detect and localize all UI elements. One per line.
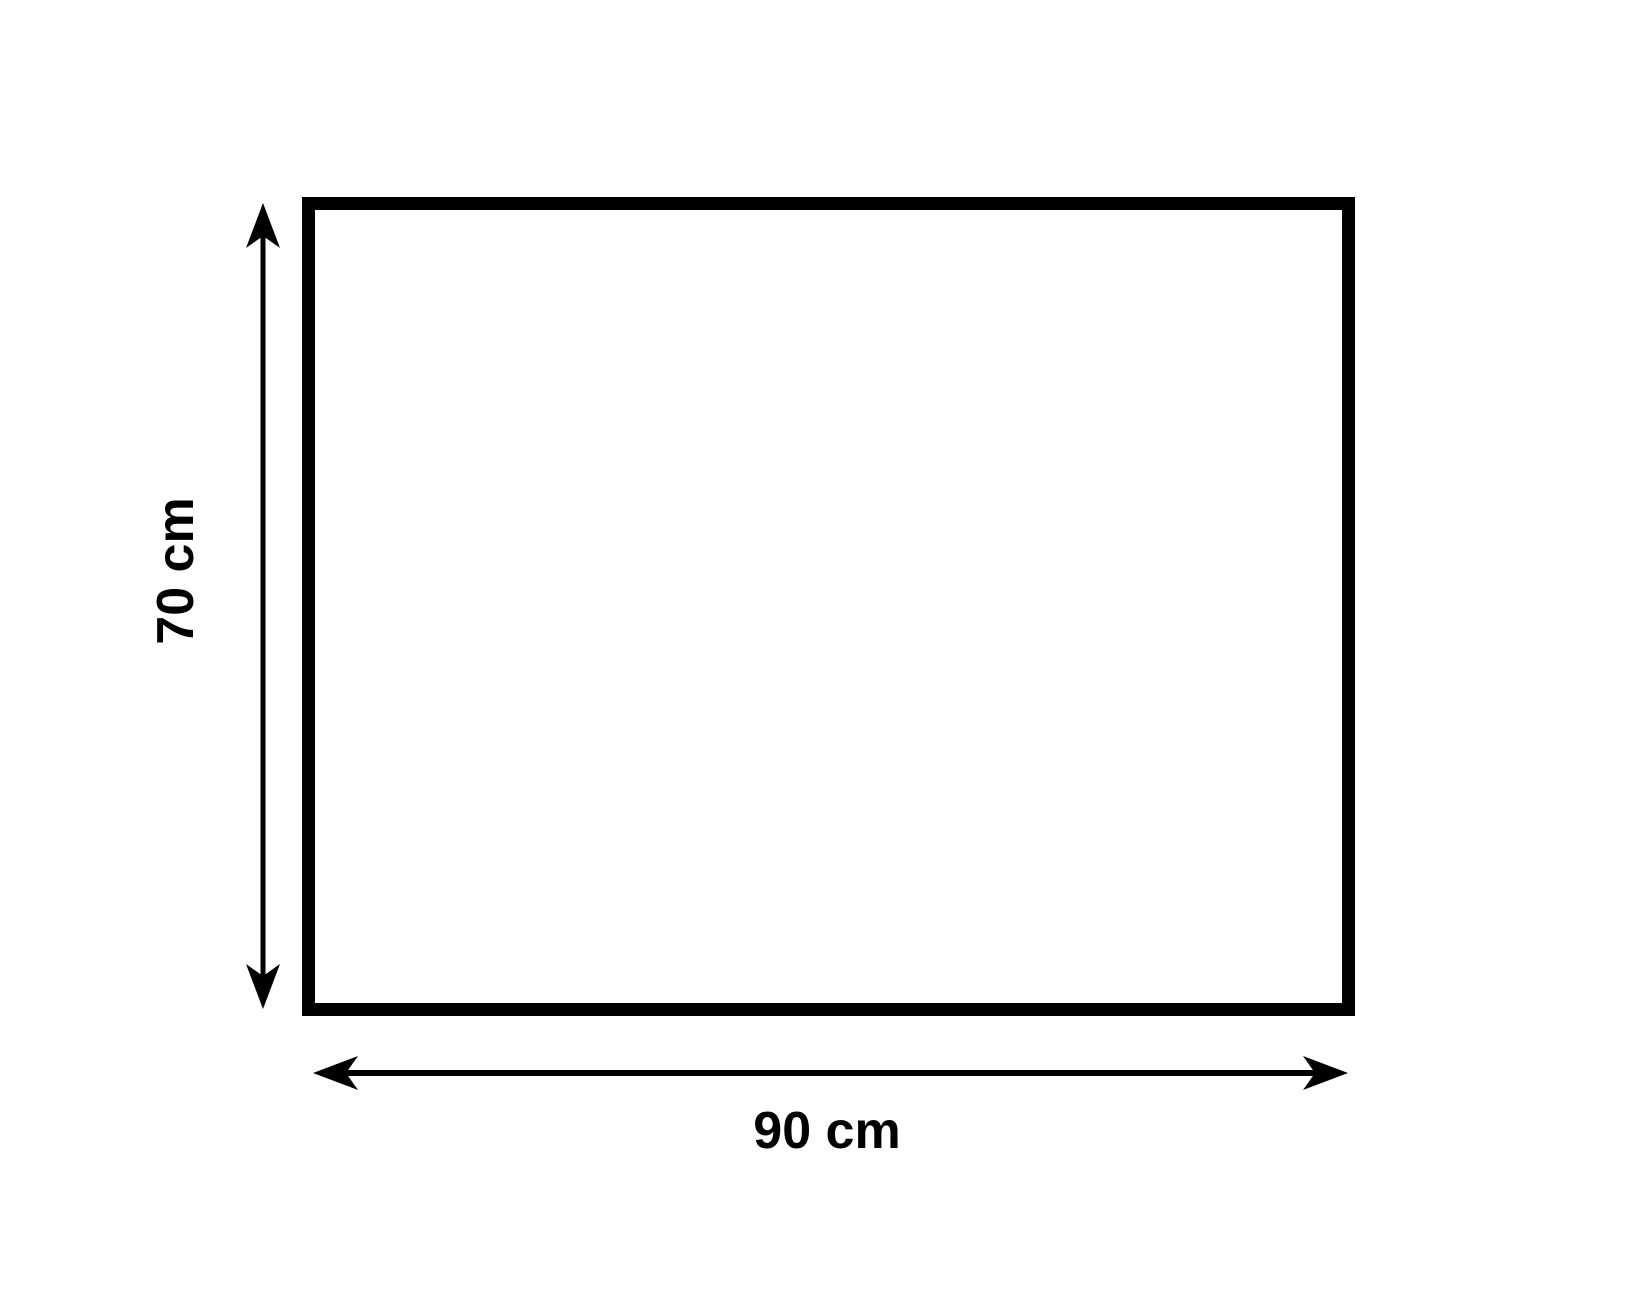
rectangle-shape <box>302 197 1355 1016</box>
height-dimension-label: 70 cm <box>146 497 206 644</box>
horizontal-dimension-arrow-icon <box>310 1048 1351 1098</box>
vertical-dimension-arrow-icon <box>238 200 288 1012</box>
diagram-canvas: 70 cm 90 cm <box>0 0 1635 1290</box>
width-dimension-label: 90 cm <box>753 1101 900 1161</box>
